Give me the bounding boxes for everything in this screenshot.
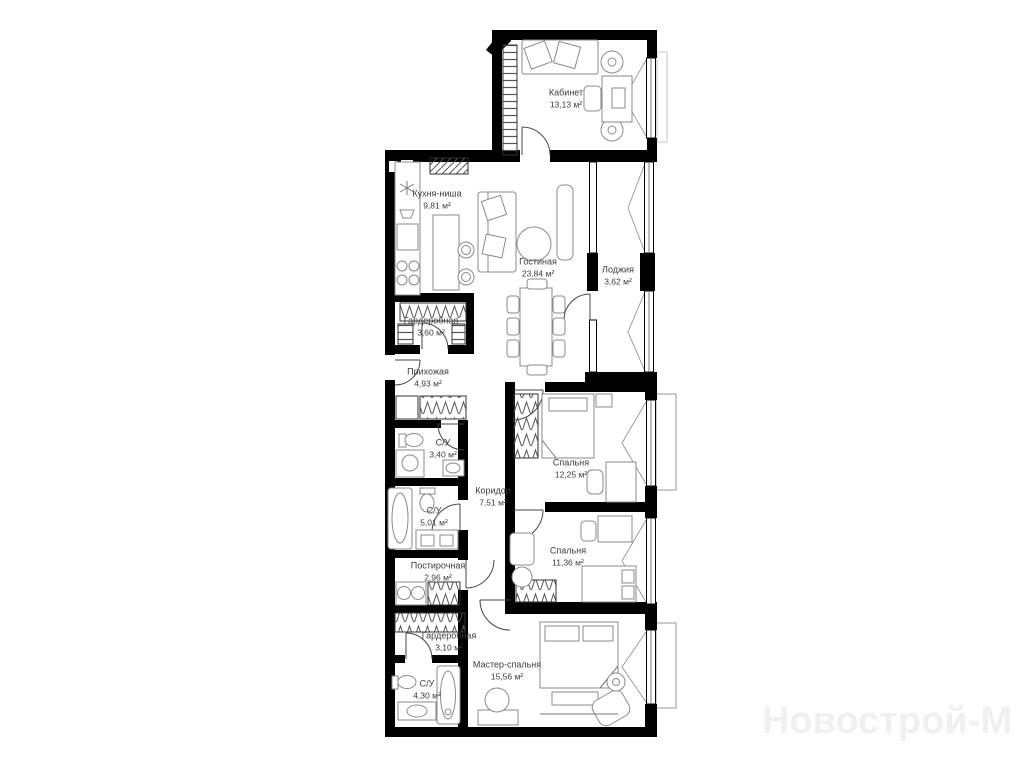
bathroom1-fixtures [396,434,464,478]
bathroom3-fixtures [392,666,460,724]
exterior-ledges [656,52,676,708]
kabinet-furniture [522,40,632,141]
kitchen-furniture [395,162,474,295]
floorplan-page: Кабинет 13,13 м² Кухня-ниша 9,81 м² Гост… [0,0,1024,768]
living-furniture [478,185,573,375]
bathroom2-fixtures [388,488,458,549]
floorplan-drawing [0,0,1024,768]
watermark: Новострой-М [762,700,1012,743]
master-furniture [478,622,633,729]
laundry-fixtures [396,582,426,605]
bedroom1-furniture [542,394,636,502]
